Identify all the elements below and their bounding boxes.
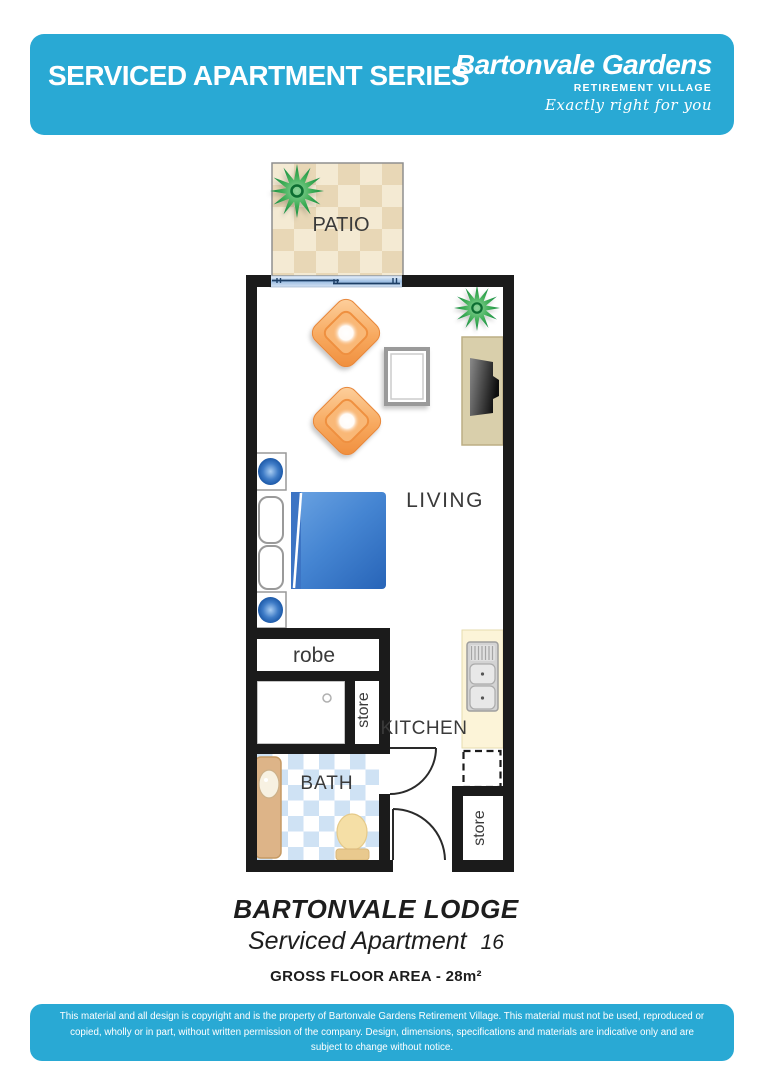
patio-label: PATIO — [312, 214, 369, 236]
coffee-table-icon — [386, 349, 428, 404]
store-lower-label: store — [471, 810, 488, 846]
door-swing-arc — [390, 748, 436, 794]
cupboard-unit — [257, 681, 345, 744]
bed-icon — [291, 492, 386, 589]
bedside-lamp-icon — [255, 592, 286, 628]
robe-label: robe — [293, 644, 335, 667]
kitchen-label: KITCHEN — [381, 718, 468, 739]
plan-titles: BARTONVALE LODGE Serviced Apartment16 GR… — [0, 894, 752, 985]
copyright-text: This material and all design is copyrigh… — [30, 1009, 734, 1056]
pillow-icon — [259, 546, 283, 589]
floor-area-label: GROSS FLOOR AREA - 28m² — [0, 968, 752, 985]
apartment-subtitle: Serviced Apartment16 — [0, 927, 752, 956]
kitchen-sink-icon — [467, 642, 498, 711]
lodge-title: BARTONVALE LODGE — [0, 894, 752, 925]
pillow-icon — [259, 497, 283, 543]
toilet-icon — [336, 814, 369, 860]
sliding-door — [270, 276, 402, 287]
patio-area: PATIO — [270, 163, 403, 276]
vanity-basin-icon — [255, 757, 281, 858]
store-upper-label: store — [355, 692, 372, 728]
armchair-icon — [308, 295, 384, 371]
living-label: LIVING — [406, 489, 484, 512]
plant-icon — [454, 285, 500, 331]
bath-label: BATH — [300, 773, 353, 794]
page: SERVICED APARTMENT SERIES Bartonvale Gar… — [0, 0, 764, 1080]
appliance-provision-dashed — [464, 751, 501, 787]
bedside-lamp-icon — [255, 453, 286, 490]
tv-cabinet-icon — [462, 337, 503, 445]
armchair-icon — [309, 383, 385, 459]
footer-banner: This material and all design is copyrigh… — [30, 1004, 734, 1061]
apartment-label: Serviced Apartment — [248, 927, 467, 955]
apartment-number: 16 — [481, 931, 504, 954]
door-swing-arc — [393, 809, 445, 860]
